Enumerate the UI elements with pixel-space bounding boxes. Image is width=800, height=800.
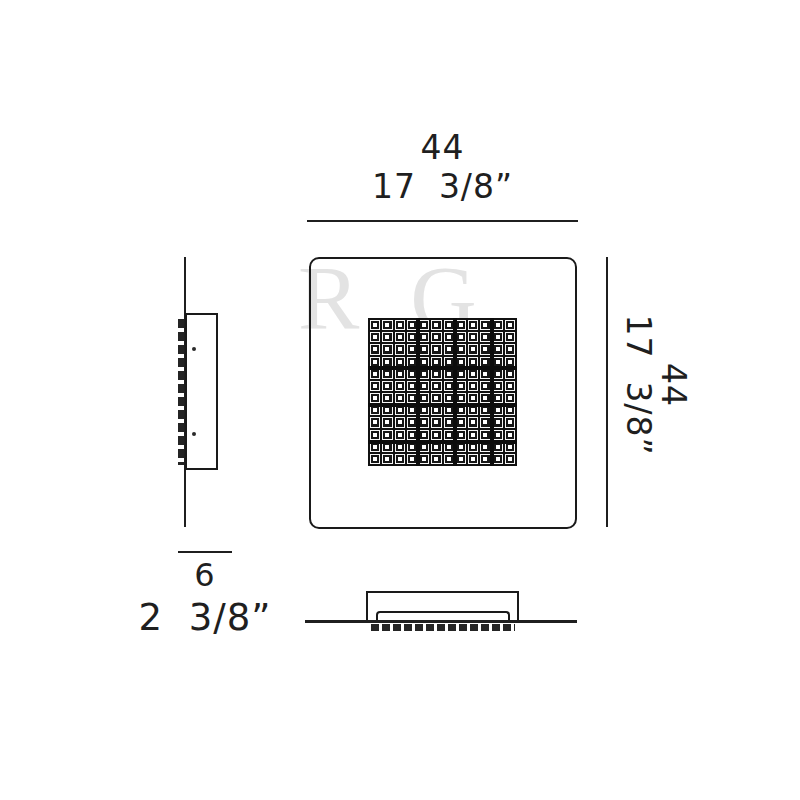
crystal-cell bbox=[395, 381, 405, 391]
crystal-cell bbox=[395, 454, 405, 464]
crystal-cell bbox=[493, 369, 503, 379]
crystal-cell bbox=[431, 369, 441, 379]
width-imperial-value: 17 3/8” bbox=[307, 170, 578, 205]
crystal-cell bbox=[382, 344, 392, 354]
crystal-cell bbox=[505, 454, 515, 464]
crystal-cell bbox=[431, 320, 441, 330]
crystal-cell bbox=[456, 381, 466, 391]
crystal-cell bbox=[431, 393, 441, 403]
crystal-cell bbox=[419, 454, 429, 464]
crystal-grid bbox=[368, 318, 517, 466]
crystal-cell bbox=[382, 369, 392, 379]
crystal-cell bbox=[505, 332, 515, 342]
crystal-cell bbox=[505, 417, 515, 427]
crystal-cell bbox=[431, 381, 441, 391]
crystal-cell bbox=[505, 381, 515, 391]
crystal-cell bbox=[456, 430, 466, 440]
bottom-view-crystal-strip bbox=[371, 624, 515, 631]
crystal-cell bbox=[370, 430, 380, 440]
crystal-cell bbox=[505, 320, 515, 330]
bottom-view-mounting-line bbox=[305, 620, 577, 623]
crystal-cell bbox=[456, 320, 466, 330]
crystal-cell bbox=[395, 430, 405, 440]
crystal-cell bbox=[505, 393, 515, 403]
crystal-cell bbox=[480, 381, 490, 391]
crystal-cell bbox=[419, 417, 429, 427]
screw-dot bbox=[192, 347, 196, 351]
crystal-cell bbox=[493, 430, 503, 440]
crystal-cell bbox=[382, 417, 392, 427]
crystal-cell bbox=[480, 454, 490, 464]
crystal-cell bbox=[370, 332, 380, 342]
crystal-cell bbox=[382, 430, 392, 440]
crystal-cell bbox=[493, 454, 503, 464]
crystal-cell bbox=[370, 320, 380, 330]
crystal-cell bbox=[395, 417, 405, 427]
height-dimension-line bbox=[606, 257, 608, 527]
crystal-cell bbox=[395, 344, 405, 354]
crystal-cell bbox=[395, 369, 405, 379]
crystal-cell bbox=[419, 381, 429, 391]
depth-imperial-value: 2 3/8” bbox=[136, 599, 274, 638]
technical-drawing: R G 44 17 3/8” 44 17 3/8” 6 2 3/8” bbox=[0, 0, 800, 800]
crystal-cell bbox=[431, 417, 441, 427]
crystal-cell bbox=[468, 454, 478, 464]
crystal-cell bbox=[480, 332, 490, 342]
crystal-cell bbox=[468, 369, 478, 379]
crystal-cell bbox=[382, 320, 392, 330]
crystal-cell bbox=[468, 393, 478, 403]
crystal-cell bbox=[493, 381, 503, 391]
crystal-cell bbox=[431, 332, 441, 342]
crystal-cell bbox=[370, 369, 380, 379]
screw-dot bbox=[192, 432, 196, 436]
crystal-cell bbox=[382, 454, 392, 464]
crystal-cell bbox=[456, 332, 466, 342]
crystal-cell bbox=[419, 430, 429, 440]
crystal-cell bbox=[419, 332, 429, 342]
crystal-cell bbox=[456, 369, 466, 379]
crystal-cell bbox=[505, 344, 515, 354]
crystal-cell bbox=[493, 417, 503, 427]
crystal-cell bbox=[480, 430, 490, 440]
crystal-cell bbox=[370, 393, 380, 403]
width-metric-value: 44 bbox=[307, 131, 578, 166]
crystal-cell bbox=[456, 344, 466, 354]
crystal-cell bbox=[505, 430, 515, 440]
crystal-cell bbox=[480, 369, 490, 379]
crystal-cell bbox=[468, 430, 478, 440]
crystal-cell bbox=[493, 393, 503, 403]
grid-divider bbox=[368, 403, 517, 407]
crystal-cell bbox=[468, 320, 478, 330]
crystal-cell bbox=[431, 454, 441, 464]
crystal-cell bbox=[382, 381, 392, 391]
crystal-cell bbox=[382, 393, 392, 403]
crystal-cell bbox=[419, 369, 429, 379]
grid-divider bbox=[368, 366, 517, 370]
crystal-cell bbox=[493, 344, 503, 354]
height-dimension-text: 44 17 3/8” bbox=[614, 250, 690, 520]
crystal-cell bbox=[468, 344, 478, 354]
crystal-cell bbox=[456, 454, 466, 464]
crystal-cell bbox=[370, 344, 380, 354]
crystal-cell bbox=[468, 417, 478, 427]
crystal-cell bbox=[370, 381, 380, 391]
depth-metric-value: 6 bbox=[168, 559, 242, 593]
crystal-cell bbox=[370, 454, 380, 464]
crystal-cell bbox=[456, 417, 466, 427]
crystal-cell bbox=[370, 417, 380, 427]
height-metric-value: 44 bbox=[655, 250, 690, 520]
crystal-cell bbox=[456, 393, 466, 403]
crystal-cell bbox=[419, 320, 429, 330]
crystal-cell bbox=[395, 393, 405, 403]
crystal-cell bbox=[431, 430, 441, 440]
crystal-cell bbox=[431, 344, 441, 354]
crystal-cell bbox=[493, 332, 503, 342]
crystal-cell bbox=[505, 369, 515, 379]
grid-divider bbox=[368, 440, 517, 444]
crystal-cell bbox=[468, 332, 478, 342]
side-view-crystal-strip bbox=[178, 319, 184, 465]
crystal-cell bbox=[419, 393, 429, 403]
crystal-cell bbox=[468, 381, 478, 391]
height-imperial-value: 17 3/8” bbox=[621, 250, 656, 520]
crystal-cell bbox=[419, 344, 429, 354]
depth-dimension-line bbox=[178, 551, 232, 553]
crystal-cell bbox=[480, 344, 490, 354]
crystal-cell bbox=[480, 417, 490, 427]
crystal-cell bbox=[382, 332, 392, 342]
crystal-cell bbox=[480, 320, 490, 330]
side-view-body bbox=[185, 313, 218, 470]
crystal-cell bbox=[395, 332, 405, 342]
crystal-cell bbox=[480, 393, 490, 403]
crystal-cell bbox=[493, 320, 503, 330]
crystal-cell bbox=[395, 320, 405, 330]
width-dimension-line bbox=[307, 220, 578, 222]
